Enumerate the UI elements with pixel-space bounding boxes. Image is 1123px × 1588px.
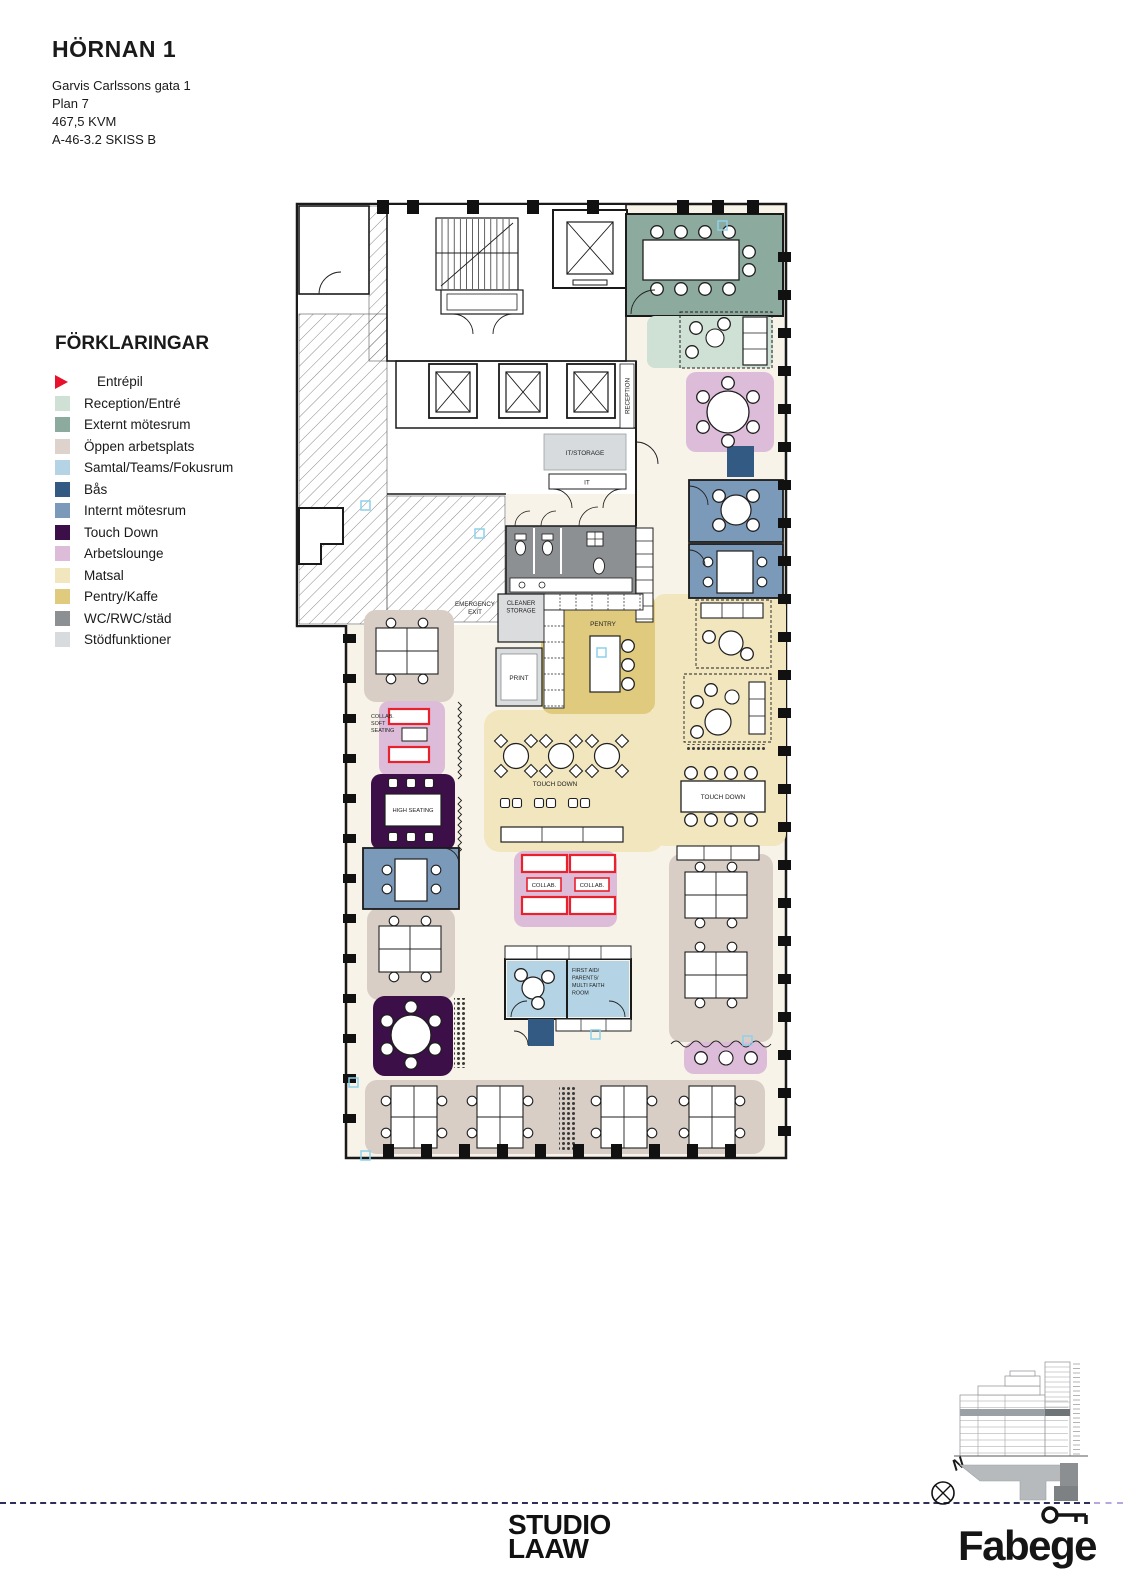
footer-divider-accent (1094, 1502, 1123, 1504)
floor-line: Plan 7 (52, 95, 191, 113)
label-touchdown-center: TOUCH DOWN (533, 781, 578, 788)
legend-item: Stödfunktioner (55, 629, 285, 651)
label-cleaner-1: CLEANER (507, 601, 536, 607)
drawing-number: A-46-3.2 SKISS B (52, 131, 191, 149)
legend-label: Touch Down (84, 525, 158, 540)
legend: FÖRKLARINGAR EntrépilReception/EntréExte… (55, 333, 285, 651)
legend-label: Stödfunktioner (84, 632, 171, 647)
desk-cluster (379, 916, 441, 982)
label-collab-a: COLLAB. (532, 883, 557, 889)
label-high-seating: HIGH SEATING (392, 808, 434, 814)
zone-bas-2 (528, 1019, 554, 1046)
label-it-storage: IT/STORAGE (566, 450, 605, 457)
desk-cluster (685, 942, 747, 1008)
legend-label: Pentry/Kaffe (84, 589, 158, 604)
label-collab-soft-1: COLLAB. (371, 714, 394, 720)
legend-item: WC/RWC/städ (55, 608, 285, 630)
legend-item: Touch Down (55, 522, 285, 544)
legend-item: Samtal/Teams/Fokusrum (55, 457, 285, 479)
floorplan-page: { "document": { "title": "HÖRNAN 1", "ad… (0, 0, 1123, 1588)
legend-item: Internt mötesrum (55, 500, 285, 522)
desk-cluster (685, 862, 747, 928)
label-first-aid-1: FIRST AID/ (572, 968, 600, 974)
legend-swatch (55, 611, 70, 626)
label-collab-soft-2: SOFT (371, 721, 386, 727)
legend-label: Öppen arbetsplats (84, 439, 194, 454)
floor-plan: RECEPTION (291, 196, 791, 1169)
legend-swatch (55, 503, 70, 518)
desk-cluster (376, 618, 438, 684)
fabege-key-icon (1040, 1503, 1092, 1527)
legend-swatch (55, 439, 70, 454)
label-emergency-1: EMERGENCY (455, 601, 495, 608)
legend-swatch (55, 568, 70, 583)
fabege-logo: Fabege (958, 1522, 1096, 1570)
label-first-aid-2: PARENTS/ (572, 976, 599, 982)
legend-label: Bås (84, 482, 107, 497)
label-first-aid-3: MULTI FAITH (572, 983, 605, 989)
label-pentry: PENTRY (590, 621, 617, 628)
legend-label: Entrépil (97, 374, 143, 389)
legend-item: Matsal (55, 565, 285, 587)
address-line: Garvis Carlssons gata 1 (52, 77, 191, 95)
legend-item: Pentry/Kaffe (55, 586, 285, 608)
legend-swatch (55, 482, 70, 497)
zone-bas-1 (727, 446, 754, 477)
legend-item: Bås (55, 479, 285, 501)
legend-item: Arbetslounge (55, 543, 285, 565)
legend-item: Entrépil (55, 371, 285, 393)
label-it: IT (584, 480, 590, 487)
label-cleaner-2: STORAGE (506, 609, 535, 615)
legend-swatch (55, 632, 70, 647)
legend-swatch (55, 546, 70, 561)
page-title: HÖRNAN 1 (52, 36, 191, 63)
legend-label: Reception/Entré (84, 396, 181, 411)
label-collab-soft-3: SEATING (371, 728, 394, 734)
entry-arrow-icon (55, 375, 81, 389)
studio-laaw-logo: STUDIO LAAW (508, 1513, 611, 1561)
legend-label: Externt mötesrum (84, 417, 191, 432)
legend-swatch (55, 525, 70, 540)
legend-item: Reception/Entré (55, 393, 285, 415)
legend-item: Öppen arbetsplats (55, 436, 285, 458)
label-print: PRINT (509, 675, 528, 682)
legend-label: Arbetslounge (84, 546, 164, 561)
title-block: HÖRNAN 1 Garvis Carlssons gata 1 Plan 7 … (52, 36, 191, 149)
legend-item: Externt mötesrum (55, 414, 285, 436)
legend-title: FÖRKLARINGAR (55, 333, 285, 355)
legend-rows: EntrépilReception/EntréExternt mötesrumÖ… (55, 371, 285, 651)
bottom-desk-clusters (381, 1086, 745, 1150)
label-touchdown-right: TOUCH DOWN (701, 794, 746, 801)
legend-swatch (55, 460, 70, 475)
legend-swatch (55, 396, 70, 411)
legend-label: Internt mötesrum (84, 503, 186, 518)
building-elevation (950, 1350, 1120, 1502)
label-collab-b: COLLAB. (580, 883, 605, 889)
area-line: 467,5 KVM (52, 113, 191, 131)
lounge-right-furniture (695, 1051, 758, 1065)
legend-label: Samtal/Teams/Fokusrum (84, 460, 233, 475)
label-reception: RECEPTION (625, 378, 632, 414)
legend-label: Matsal (84, 568, 124, 583)
legend-swatch (55, 589, 70, 604)
legend-label: WC/RWC/städ (84, 611, 172, 626)
label-emergency-2: EXIT (468, 609, 482, 616)
label-first-aid-4: ROOM (572, 991, 589, 997)
legend-swatch (55, 417, 70, 432)
footer-divider (0, 1502, 1090, 1504)
